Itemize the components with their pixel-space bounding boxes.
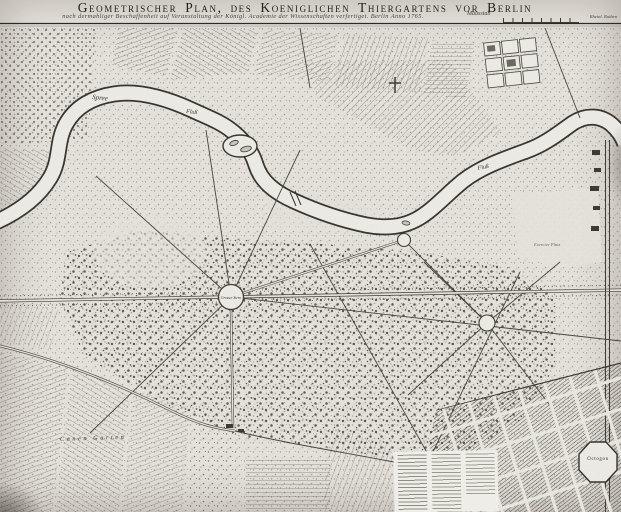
- legend-column: [398, 454, 428, 512]
- legend-column: [466, 453, 496, 494]
- scanned-map-page: Grosser Stern: [0, 0, 621, 512]
- legend-panel: [393, 450, 498, 512]
- legend-column: [432, 454, 462, 512]
- scan-smudge: [605, 120, 621, 210]
- scan-grain: [0, 0, 621, 512]
- scan-smudge: [0, 482, 46, 512]
- map-body: Grosser Stern: [0, 0, 621, 512]
- map-engraving: Grosser Stern: [0, 0, 621, 512]
- title-band-rules: [0, 24, 621, 27]
